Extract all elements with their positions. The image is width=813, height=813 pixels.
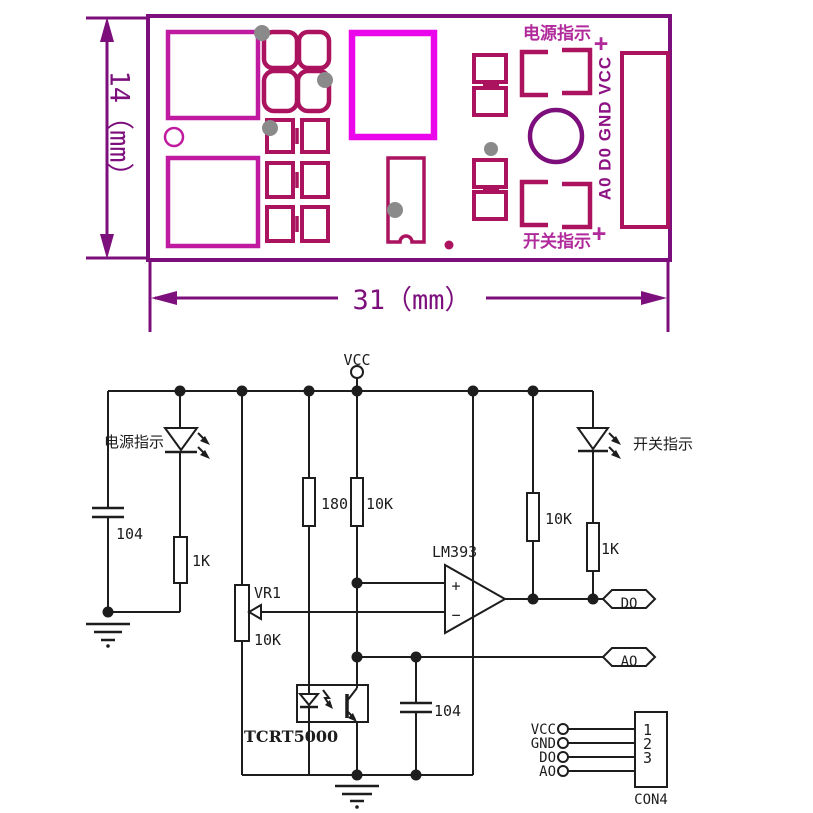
ground-lines xyxy=(86,624,130,640)
comparator-minus: − xyxy=(451,606,460,624)
resistor-pullup-out-value: 10K xyxy=(545,510,572,528)
width-dim-label: 31（mm） xyxy=(352,285,471,316)
diagram-canvas: 14（mm） 31（mm） xyxy=(0,0,813,813)
switch-indicator-led: 开关指示 xyxy=(578,428,693,459)
junction-dot xyxy=(352,652,363,663)
drill-dot xyxy=(254,25,270,41)
resistor-pullup-mid-value: 10K xyxy=(366,495,393,513)
do-output-flag: DO xyxy=(603,590,655,612)
drill-dot xyxy=(317,72,333,88)
drill-dot xyxy=(387,202,403,218)
smd-pad xyxy=(474,160,506,187)
junction-dot xyxy=(411,770,422,781)
smd-pad xyxy=(302,163,328,197)
smd-pad xyxy=(474,55,506,82)
power-led-label: 电源指示 xyxy=(104,434,164,451)
junction-dot xyxy=(528,386,539,397)
comparator-lm393: + − LM393 xyxy=(432,543,505,633)
rounded-footprint-cluster xyxy=(264,32,329,111)
junction-dot xyxy=(468,386,479,397)
conn-pin-circle xyxy=(558,752,568,762)
smd-pad xyxy=(267,207,293,241)
resistor-pullup-out xyxy=(527,493,539,541)
junction-dot xyxy=(103,607,114,618)
mounting-hole xyxy=(530,110,582,162)
power-led-footprint xyxy=(522,50,590,95)
vr1-wiper-arrow-icon xyxy=(249,605,261,619)
sensor-label: TCRT5000 xyxy=(244,727,338,746)
do-flag-label: DO xyxy=(621,596,638,612)
junction-dot xyxy=(411,652,422,663)
conn-name: CON4 xyxy=(634,792,668,808)
smd-pad xyxy=(267,163,293,197)
junction-dot xyxy=(528,594,539,605)
junction-dot xyxy=(352,386,363,397)
capacitor-output-value: 104 xyxy=(434,702,461,720)
vr1-name: VR1 xyxy=(254,584,281,602)
resistor-led-left-value: 1K xyxy=(192,552,210,570)
silk-dot xyxy=(445,241,454,250)
via-hole xyxy=(165,128,183,146)
switch-led-footprint xyxy=(522,182,590,227)
header-connector-footprint xyxy=(622,53,668,227)
width-arrow-left-icon xyxy=(151,291,177,305)
resistor-led-right-value: 1K xyxy=(601,540,619,558)
smd-pad xyxy=(474,192,506,219)
silk-plus-bottom: + xyxy=(592,220,607,248)
schematic-figure: VCC 104 104 电源指示 1K VR1 10K 180 10K xyxy=(86,351,693,809)
conn-num3: 3 xyxy=(643,749,652,767)
ground-lines xyxy=(335,786,379,801)
smd-pad xyxy=(302,120,328,152)
smd-pad xyxy=(474,88,506,115)
width-arrow-right-icon xyxy=(641,291,667,305)
comparator-plus: + xyxy=(451,577,460,595)
silk-plus-top: + xyxy=(594,30,609,58)
vr1-body xyxy=(235,585,249,641)
smd-resistor-footprints xyxy=(267,120,328,241)
conn-pin-circle xyxy=(558,738,568,748)
height-dim-label: 14（mm） xyxy=(104,70,135,189)
conn-pin-circle xyxy=(558,724,568,734)
capacitor-output xyxy=(400,703,432,712)
sensor-footprint xyxy=(352,33,434,137)
rounded-pad xyxy=(264,71,297,111)
junction-dot xyxy=(352,578,363,589)
rounded-pad xyxy=(264,32,297,68)
pcb-layout-figure: 14（mm） 31（mm） xyxy=(86,16,670,332)
ground-dot xyxy=(355,805,359,809)
switch-led-label: 开关指示 xyxy=(633,436,693,453)
junction-dot xyxy=(352,770,363,781)
capacitor-input-value: 104 xyxy=(116,525,143,543)
height-arrow-down-icon xyxy=(100,234,114,259)
resistor-ir-led xyxy=(303,478,315,526)
conn-pin-circle xyxy=(558,766,568,776)
pad-square-top-left xyxy=(168,32,258,118)
potentiometer-vr1: VR1 10K xyxy=(235,584,281,649)
ground-symbol-bottom xyxy=(335,786,379,809)
pad-square-bottom-left xyxy=(168,158,258,246)
ao-flag-label: AO xyxy=(621,654,638,670)
height-arrow-up-icon xyxy=(100,17,114,42)
ic-footprint-notched xyxy=(388,158,424,242)
ground-dot xyxy=(106,644,110,648)
junction-dot xyxy=(588,594,599,605)
ground-symbol-left xyxy=(86,624,130,648)
power-indicator-led: 电源指示 xyxy=(104,428,210,459)
drill-dot xyxy=(262,120,278,136)
resistor-led-left xyxy=(174,537,187,583)
silk-pin-labels: A0 D0 GND VCC xyxy=(595,56,614,200)
vcc-label: VCC xyxy=(343,351,370,369)
junction-dot xyxy=(237,386,248,397)
sensor-module-diagram: 14（mm） 31（mm） xyxy=(0,0,813,813)
tcrt5000-sensor: TCRT5000 xyxy=(244,685,368,746)
connector-con4: VCC GND DO AO 1 2 3 CON4 xyxy=(531,712,668,808)
vr1-value: 10K xyxy=(254,631,281,649)
drill-dot xyxy=(484,142,498,156)
comparator-label: LM393 xyxy=(432,543,477,561)
rounded-pad xyxy=(299,32,329,68)
led-triangle xyxy=(165,428,197,450)
silk-power-label: 电源指示 xyxy=(523,23,591,43)
led-triangle xyxy=(578,428,608,449)
width-dimension: 31（mm） xyxy=(150,262,668,332)
ao-output-flag: AO xyxy=(603,648,655,670)
junction-dot xyxy=(175,386,186,397)
ir-led-triangle xyxy=(300,694,318,705)
resistor-ir-led-value: 180 xyxy=(321,495,348,513)
height-dimension: 14（mm） xyxy=(86,17,148,259)
junction-dot xyxy=(304,386,315,397)
led-side-pads xyxy=(474,55,506,219)
resistor-led-right xyxy=(587,523,599,571)
conn-pin4-label: AO xyxy=(539,764,556,780)
resistor-pullup-mid xyxy=(351,478,363,526)
smd-pad xyxy=(302,207,328,241)
silk-switch-label: 开关指示 xyxy=(523,231,591,251)
capacitor-input xyxy=(92,508,124,517)
